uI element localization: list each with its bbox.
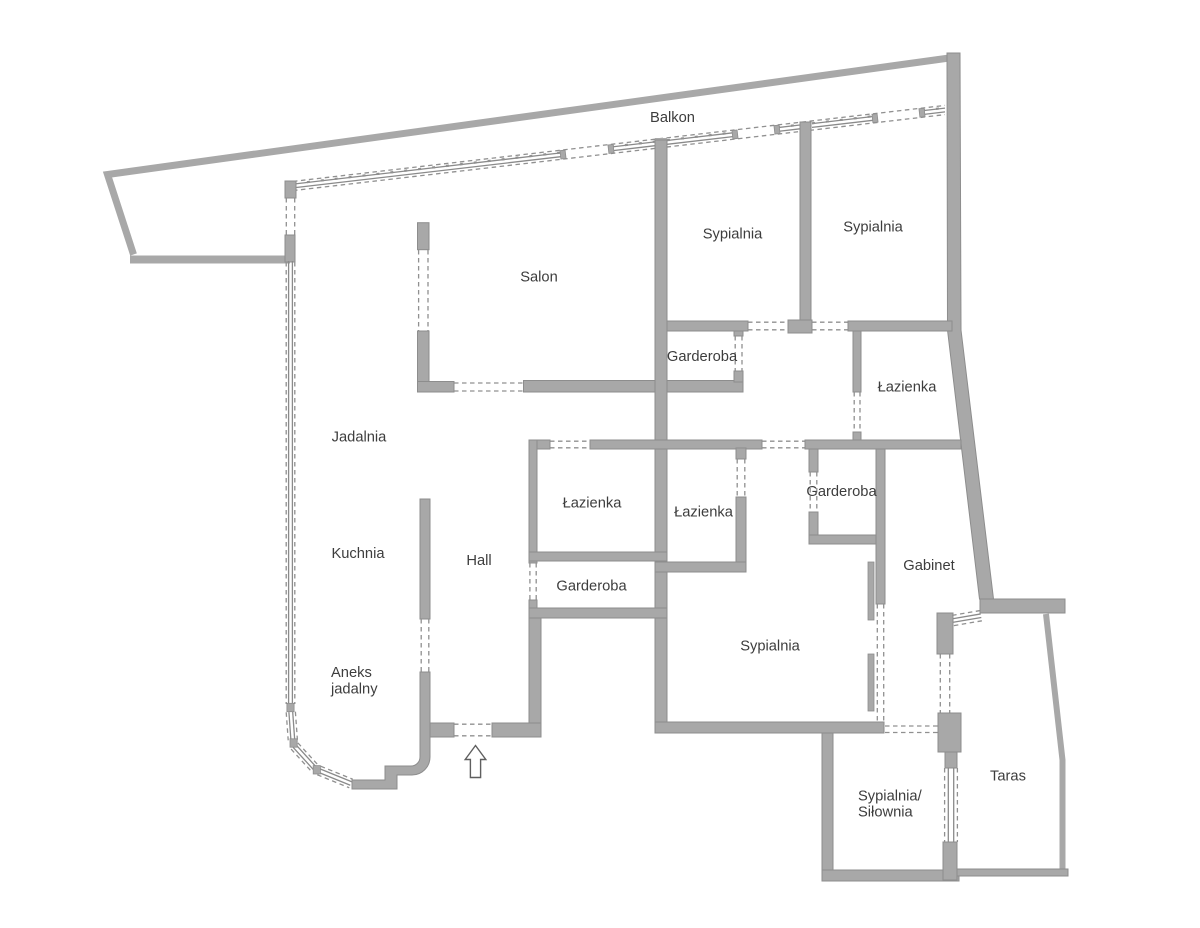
svg-text:jadalny: jadalny: [330, 682, 378, 698]
svg-text:Łazienka: Łazienka: [563, 496, 623, 512]
svg-text:Sypialnia/: Sypialnia/: [858, 789, 923, 805]
svg-text:Balkon: Balkon: [650, 110, 695, 126]
svg-text:Łazienka: Łazienka: [878, 380, 938, 396]
svg-text:Sypialnia: Sypialnia: [843, 220, 903, 236]
svg-text:Salon: Salon: [520, 270, 558, 286]
svg-text:Siłownia: Siłownia: [858, 805, 914, 821]
svg-text:Gabinet: Gabinet: [903, 558, 954, 574]
svg-text:Sypialnia: Sypialnia: [740, 639, 800, 655]
svg-text:Sypialnia: Sypialnia: [703, 227, 763, 243]
svg-text:Kuchnia: Kuchnia: [331, 546, 385, 562]
svg-text:Garderoba: Garderoba: [667, 349, 738, 365]
svg-text:Taras: Taras: [990, 769, 1026, 785]
svg-text:Hall: Hall: [466, 553, 491, 569]
svg-text:Aneks: Aneks: [331, 665, 372, 681]
svg-text:Jadalnia: Jadalnia: [332, 430, 388, 446]
svg-text:Łazienka: Łazienka: [674, 505, 734, 521]
svg-text:Garderoba: Garderoba: [556, 579, 627, 595]
svg-text:Garderoba: Garderoba: [806, 484, 877, 500]
